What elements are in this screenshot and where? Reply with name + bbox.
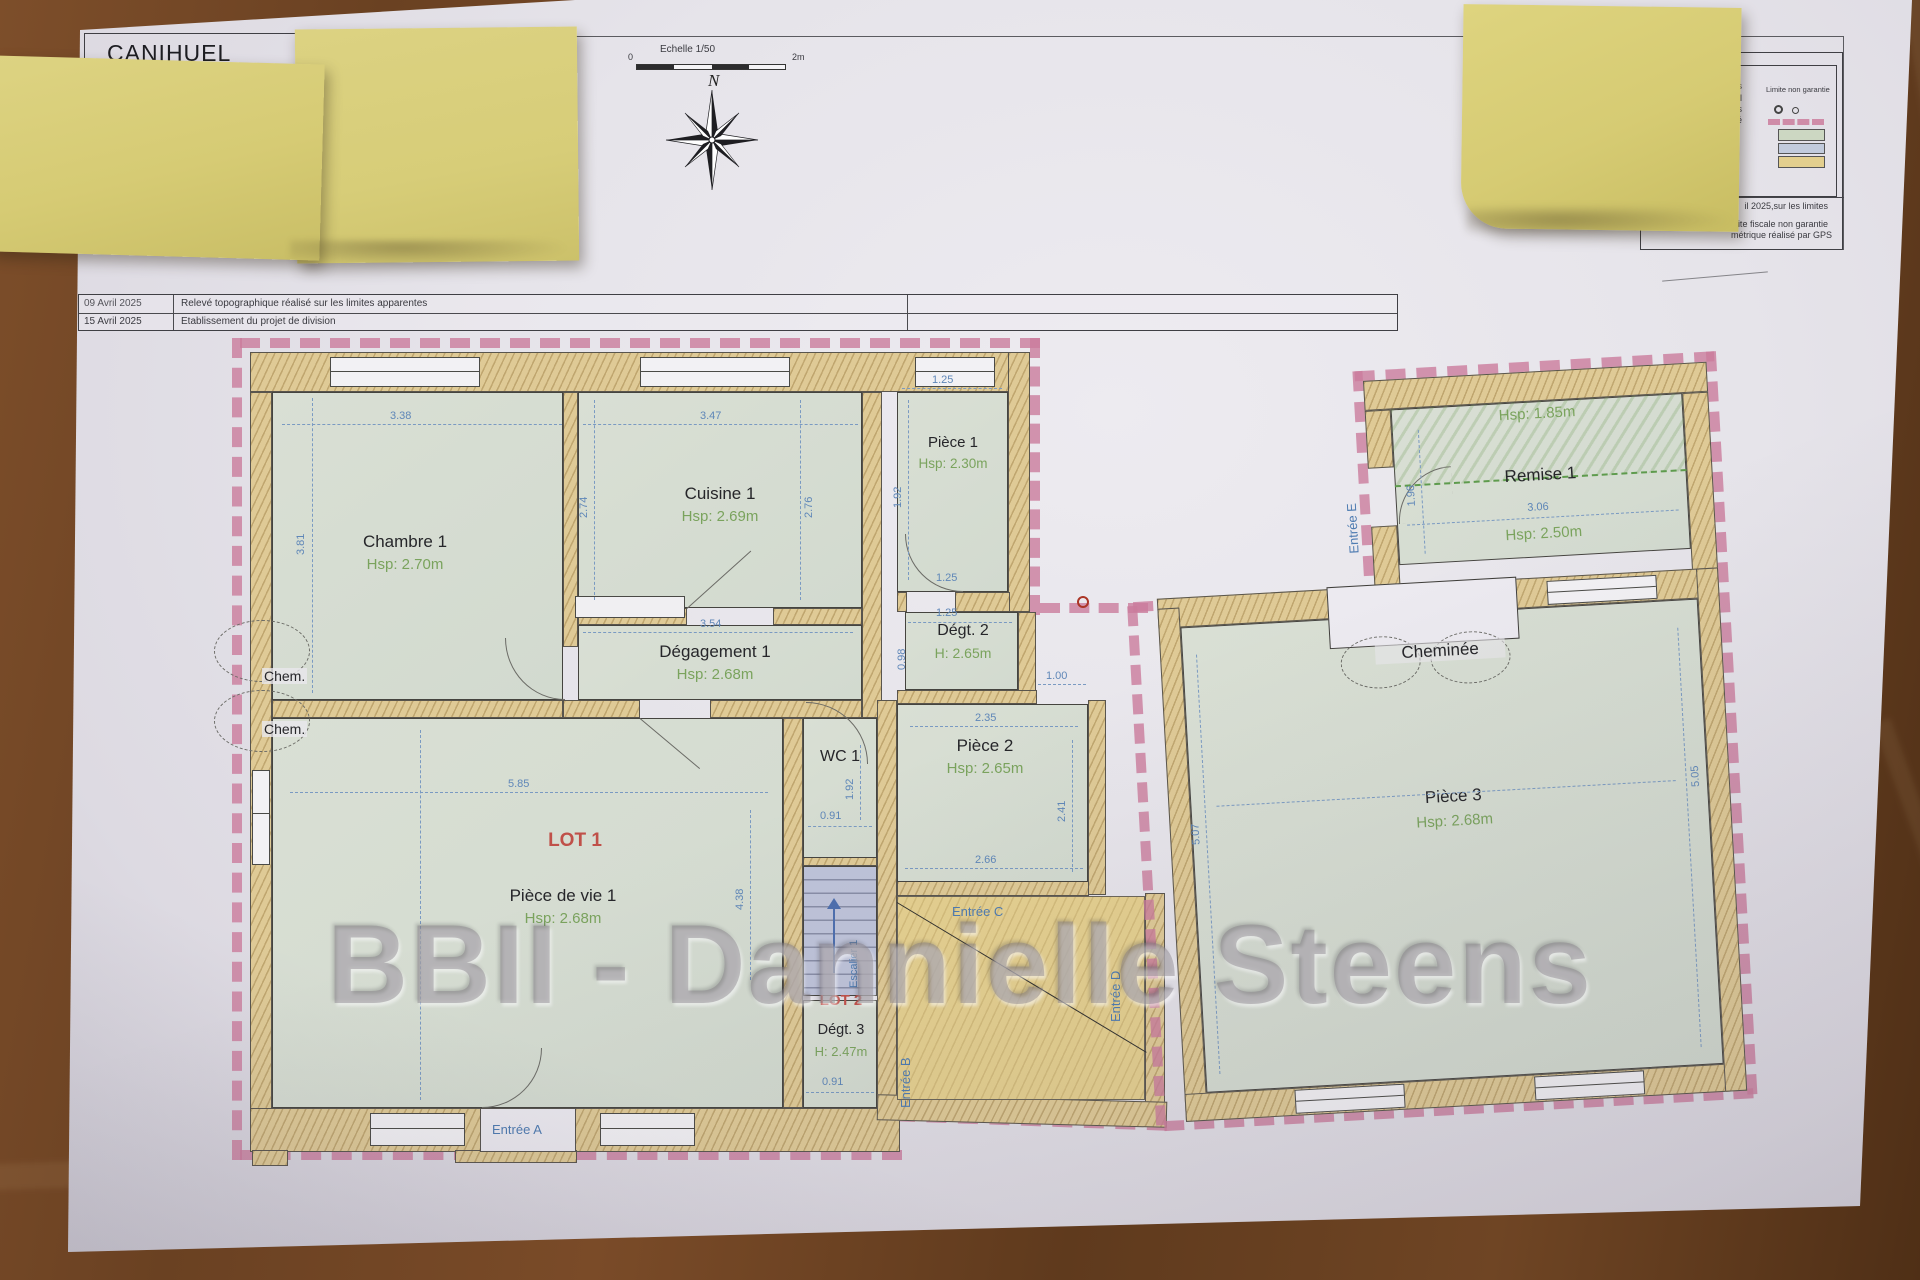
- wall-remise-west-b: [1371, 525, 1400, 586]
- dim-deg1-w: 3.54: [700, 618, 721, 630]
- window-south-2: [600, 1113, 695, 1146]
- window-south-1: [370, 1113, 465, 1146]
- sticky-note-top-left-1: [0, 55, 325, 260]
- label-chambre1: Chambre 1: [330, 532, 480, 552]
- sticky-note-top-left-2: [295, 27, 579, 264]
- dim-wc-h: 1.92: [844, 762, 856, 800]
- dim-line: [1072, 740, 1073, 872]
- dim-piece3-hl: 5.07: [1188, 805, 1202, 846]
- dim-line: [594, 400, 595, 600]
- dim-piece2-b: 2.66: [975, 854, 996, 866]
- dim-line: [808, 826, 872, 827]
- dim-link-w: 1.00: [1046, 670, 1067, 682]
- dim-line: [583, 424, 858, 425]
- dim-piece2-h: 2.41: [1056, 782, 1068, 822]
- dim-remise-w: 3.06: [1527, 501, 1549, 514]
- dim-degt2-w2: 1.25: [936, 607, 957, 619]
- dim-pdv-w: 5.85: [508, 778, 529, 790]
- dim-chambre-h: 3.81: [295, 515, 307, 555]
- wall-degt2-piece2: [897, 690, 1037, 704]
- legend-note-1: il 2025,sur les limites: [1744, 201, 1828, 211]
- revision-2-desc: Etablissement du projet de division: [181, 316, 336, 327]
- legend-room-swatch: [1778, 129, 1825, 141]
- compass-rose: N: [650, 70, 774, 194]
- label-degt2: Dégt. 2: [918, 622, 1008, 640]
- dim-chambre-w: 3.38: [390, 410, 411, 422]
- dim-line: [806, 1092, 874, 1093]
- scale-label: Echelle 1/50: [660, 44, 715, 55]
- dim-line: [902, 388, 1002, 389]
- wall-piece1-east: [1008, 352, 1030, 612]
- dim-degt2-h: 0.98: [896, 632, 908, 670]
- dim-piece1-w: 1.25: [932, 374, 953, 386]
- dim-line: [583, 632, 853, 633]
- legend-point-symbol-open: [1792, 107, 1799, 114]
- agency-watermark: BBII - Dannielle Steens: [310, 900, 1610, 1029]
- frame-right-line: [1843, 36, 1844, 250]
- legend-blue-swatch: [1778, 143, 1825, 154]
- revision-1-date: 09 Avril 2025: [84, 298, 142, 309]
- dim-cuisine-w: 3.47: [700, 410, 721, 422]
- dim-degt3-w: 0.91: [822, 1076, 843, 1088]
- label-cuisine1: Cuisine 1: [645, 484, 795, 504]
- revision-1-desc: Relevé topographique réalisé sur les lim…: [181, 298, 427, 309]
- dim-cuisine-hr: 2.76: [803, 478, 815, 518]
- label-entreeA: Entrée A: [492, 1122, 542, 1137]
- boundary-right-upper: [1030, 338, 1040, 615]
- wall-remise-west-a: [1365, 409, 1394, 468]
- dim-piece3-hr: 5.05: [1688, 747, 1702, 788]
- dim-cuisine-hl: 2.74: [578, 478, 590, 518]
- wall-corridor-south-a: [563, 700, 640, 718]
- photographed-floor-plan: CANIHUEL 09 Avril 2025 Relevé topographi…: [0, 0, 1920, 1280]
- dim-piece2-w: 2.35: [975, 712, 996, 724]
- label-piece1: Pièce 1: [905, 434, 1001, 451]
- hsp-degt2: H: 2.65m: [914, 645, 1012, 661]
- kitchen-counter: [575, 596, 685, 618]
- legend-note-2: ite fiscale non garantie: [1738, 219, 1828, 229]
- dim-degt2-w1: 1.25: [936, 572, 957, 584]
- legend-point-symbol: [1774, 105, 1783, 114]
- hsp-chambre1: Hsp: 2.70m: [330, 556, 480, 573]
- label-degagement1: Dégagement 1: [630, 642, 800, 662]
- dim-line: [312, 398, 313, 693]
- label-entreeB: Entrée B: [898, 1028, 913, 1108]
- right-building-group: Cheminée Hsp: 1.85m Remise 1 3.06 Hsp: 2…: [1113, 323, 1797, 1157]
- wall-chambre-south: [272, 700, 563, 718]
- dim-line: [908, 400, 909, 580]
- wall-piece2-east: [1088, 700, 1106, 895]
- table-col-divider: [173, 295, 174, 330]
- wall-piece2-south: [897, 880, 1089, 896]
- dim-remise-h: 1.96: [1404, 468, 1418, 507]
- legend-note-3: métrique réalisé par GPS: [1731, 230, 1832, 240]
- window-cuisine: [640, 357, 790, 387]
- hsp-cuisine1: Hsp: 2.69m: [645, 508, 795, 525]
- window-chambre: [330, 357, 480, 387]
- legend-boundary-swatch: [1768, 119, 1824, 125]
- wall-piece1-south: [955, 592, 1010, 612]
- label-lot1: LOT 1: [520, 830, 630, 852]
- legend-yellow-swatch: [1778, 156, 1825, 168]
- scale-zero: 0: [628, 52, 633, 62]
- dim-line: [1038, 684, 1086, 685]
- hsp-degt3: H: 2.47m: [800, 1044, 882, 1059]
- legend-limite-label: Limite non garantie: [1766, 85, 1830, 94]
- dim-line: [905, 868, 1083, 869]
- dim-line: [282, 424, 562, 425]
- boundary-top: [240, 338, 1040, 348]
- window-west: [252, 770, 270, 865]
- table-col-divider: [907, 295, 908, 330]
- revision-2-date: 15 Avril 2025: [84, 316, 142, 327]
- boundary-marker-circle: [1077, 596, 1089, 608]
- wall-piece1-south-stub: [897, 592, 907, 612]
- chem-label-2: Chem.: [262, 721, 307, 737]
- window-piece1: [915, 357, 995, 387]
- label-wc1: WC 1: [805, 748, 875, 766]
- dim-line: [290, 792, 768, 793]
- table-row-divider: [79, 313, 1397, 314]
- scale-end: 2m: [792, 52, 805, 62]
- hsp-piece1: Hsp: 2.30m: [898, 456, 1008, 471]
- label-piece2: Pièce 2: [930, 736, 1040, 756]
- dim-piece1-h: 1.92: [892, 468, 904, 508]
- wall-degt2-east: [1018, 612, 1036, 695]
- sticky-note-shadow: [1466, 208, 1736, 238]
- room-degagement1: [578, 625, 862, 700]
- svg-text:N: N: [707, 71, 721, 90]
- hsp-degagement1: Hsp: 2.68m: [630, 666, 800, 683]
- hsp-piece2: Hsp: 2.65m: [925, 760, 1045, 777]
- step-southwest: [252, 1150, 288, 1166]
- sticky-note-top-right: [1460, 4, 1741, 232]
- wall-cuisine-south-b: [773, 608, 862, 625]
- revision-table: 09 Avril 2025 Relevé topographique réali…: [78, 294, 1398, 331]
- dim-line: [910, 726, 1078, 727]
- chem-label-1: Chem.: [262, 668, 307, 684]
- dim-line: [800, 400, 801, 600]
- dim-wc-w: 0.91: [820, 810, 841, 822]
- wall-spine-upper: [862, 392, 882, 718]
- sticky-note-shadow: [290, 240, 570, 266]
